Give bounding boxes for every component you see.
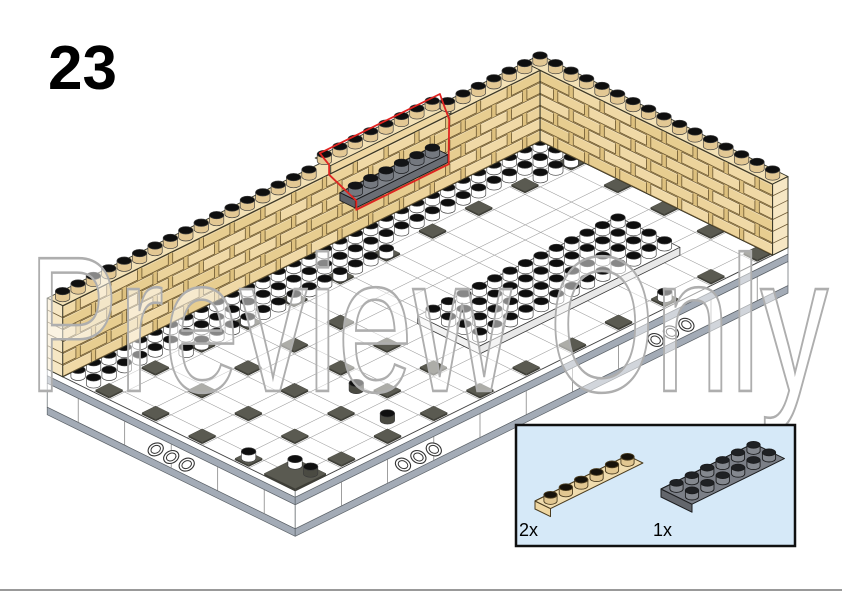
svg-text:Preview Only: Preview Only bbox=[28, 218, 829, 433]
svg-text:1x: 1x bbox=[653, 520, 672, 540]
svg-text:2x: 2x bbox=[519, 520, 538, 540]
